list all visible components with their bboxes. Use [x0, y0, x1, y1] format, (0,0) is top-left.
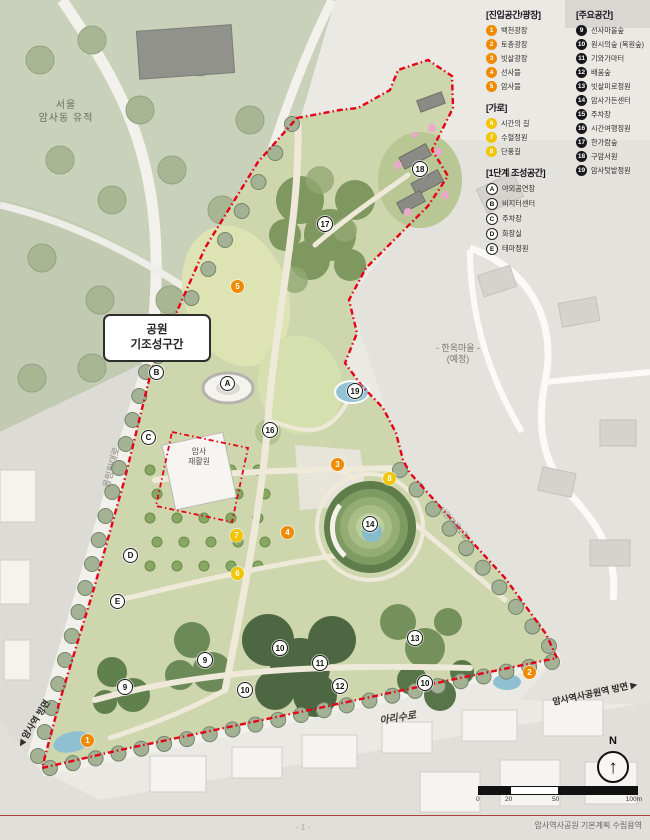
legend-marker-badge: B	[486, 198, 498, 210]
legend-item-label: 주차장	[591, 110, 611, 120]
legend-item: 8단풍길	[486, 146, 572, 157]
map-marker-17: 17	[317, 216, 333, 232]
legend-marker-badge: 13	[576, 81, 587, 92]
legend-item: D화장실	[486, 228, 572, 240]
legend-item: 5암사뜰	[486, 81, 572, 92]
map-marker-D: D	[123, 548, 138, 563]
page-number: - 1 -	[296, 823, 310, 832]
legend-marker-badge: 5	[486, 81, 497, 92]
map-marker-10: 10	[417, 675, 433, 691]
map-marker-6: 6	[231, 567, 244, 580]
legend-item: 17한가람숲	[576, 137, 648, 148]
legend-item: 19암사텃밭정원	[576, 165, 648, 176]
legend-item: 13빗살미로정원	[576, 81, 648, 92]
legend-item-label: 암사가든센터	[591, 96, 631, 106]
legend-marker-badge: 14	[576, 95, 587, 106]
legend-item-label: 백천광장	[501, 26, 527, 36]
map-marker-4: 4	[281, 526, 294, 539]
legend-marker-badge: 11	[576, 53, 587, 64]
legend-item-label: 빗살미로정원	[591, 82, 631, 92]
legend-item-label: 암사뜰	[501, 82, 521, 92]
map-marker-18: 18	[412, 161, 428, 177]
legend-marker-badge: 4	[486, 67, 497, 78]
map-marker-14: 14	[362, 516, 378, 532]
legend-item-label: 선사마을숲	[591, 26, 624, 36]
legend-item-label: 화장실	[502, 229, 522, 239]
legend-title: [가로]	[486, 101, 572, 114]
legend-item-label: 선사뜰	[501, 68, 521, 78]
legend-group-entry: [진입공간/광장]1백천광장2토층광장3빗살광장4선사뜰5암사뜰	[486, 8, 572, 92]
legend-title: [진입공간/광장]	[486, 8, 572, 21]
existing-section-box: 공원 기조성구간	[103, 314, 211, 362]
legend-marker-badge: 9	[576, 25, 587, 36]
legend-marker-badge: 1	[486, 25, 497, 36]
legend-item-label: 원시의숲 (복원숲)	[591, 40, 644, 50]
legend-item-label: 암사텃밭정원	[591, 166, 631, 176]
legend-item: 11기와가마터	[576, 53, 648, 64]
legend-marker-badge: 7	[486, 132, 497, 143]
scale-bar: 0 20 50 100m	[478, 786, 638, 805]
legend-marker-badge: 10	[576, 39, 587, 50]
map-marker-13: 13	[407, 630, 423, 646]
map-marker-B: B	[149, 365, 164, 380]
scale-tick: 100m	[626, 796, 642, 803]
legend-item: A야외공연장	[486, 183, 572, 195]
map-marker-2: 2	[523, 666, 536, 679]
legend-marker-badge: 3	[486, 53, 497, 64]
legend-marker-badge: 16	[576, 123, 587, 134]
legend-marker-badge: C	[486, 213, 498, 225]
legend-item: 15주차장	[576, 109, 648, 120]
legend-item: 7수혈정원	[486, 132, 572, 143]
legend-item-label: 기와가마터	[591, 54, 624, 64]
legend-group-street: [가로]6시간의 길7수혈정원8단풍길	[486, 101, 572, 157]
legend-item-label: 야외공연장	[502, 184, 535, 194]
legend-item: 3빗살광장	[486, 53, 572, 64]
legend-marker-badge: 6	[486, 118, 497, 129]
legend-group-main: [주요공간]9선사마을숲10원시의숲 (복원숲)11기와가마터12배움숲13빗살…	[576, 8, 648, 176]
north-arrow-icon: ↑	[597, 751, 629, 783]
legend-item-label: 토층광장	[501, 40, 527, 50]
footer-rule	[0, 815, 650, 816]
legend-group-phase1: [1단계 조성공간]A야외공연장B비지터센터C주차장D화장실E테마정원	[486, 166, 572, 255]
legend-marker-badge: E	[486, 243, 498, 255]
legend-item: B비지터센터	[486, 198, 572, 210]
legend-item: E테마정원	[486, 243, 572, 255]
map-marker-19: 19	[347, 383, 363, 399]
legend-item: 10원시의숲 (복원숲)	[576, 39, 648, 50]
legend-item: 6시간의 길	[486, 118, 572, 129]
map-marker-9: 9	[197, 652, 213, 668]
scale-tick: 20	[505, 796, 512, 803]
legend-item-label: 시간여행정원	[591, 124, 631, 134]
map-marker-10: 10	[272, 640, 288, 656]
legend-item-label: 단풍길	[501, 147, 521, 157]
legend-item-label: 한가람숲	[591, 138, 617, 148]
map-marker-16: 16	[262, 422, 278, 438]
map-marker-C: C	[141, 430, 156, 445]
legend-item-label: 테마정원	[502, 244, 528, 254]
legend-item-label: 배움숲	[591, 68, 611, 78]
legend-item-label: 빗살광장	[501, 54, 527, 64]
legend-item-label: 시간의 길	[501, 119, 529, 129]
scale-tick: 0	[476, 796, 480, 803]
map-marker-10: 10	[237, 682, 253, 698]
map-marker-5: 5	[231, 280, 244, 293]
legend-item: 16시간여행정원	[576, 123, 648, 134]
legend-item: 14암사가든센터	[576, 95, 648, 106]
legend-item-label: 주차장	[502, 214, 522, 224]
legend-item: 1백천광장	[486, 25, 572, 36]
map-marker-12: 12	[332, 678, 348, 694]
map-marker-1: 1	[81, 734, 94, 747]
legend-marker-badge: 19	[576, 165, 587, 176]
legend-item: 12배움숲	[576, 67, 648, 78]
legend-marker-badge: 15	[576, 109, 587, 120]
legend-marker-badge: 17	[576, 137, 587, 148]
legend-marker-badge: A	[486, 183, 498, 195]
map-marker-E: E	[110, 594, 125, 609]
map-marker-3: 3	[331, 458, 344, 471]
map-marker-11: 11	[312, 655, 328, 671]
map-marker-7: 7	[230, 529, 243, 542]
legend-item: 4선사뜰	[486, 67, 572, 78]
legend-item-label: 구암서원	[591, 152, 617, 162]
legend-item-label: 수혈정원	[501, 133, 527, 143]
legend-marker-badge: 12	[576, 67, 587, 78]
legend-item: 9선사마을숲	[576, 25, 648, 36]
legend-item-label: 비지터센터	[502, 199, 535, 209]
legend-title: [주요공간]	[576, 8, 648, 21]
legend-title: [1단계 조성공간]	[486, 166, 572, 179]
map-marker-9: 9	[117, 679, 133, 695]
map-marker-8: 8	[383, 472, 396, 485]
legend: [진입공간/광장]1백천광장2토층광장3빗살광장4선사뜰5암사뜰 [가로]6시간…	[486, 8, 648, 264]
north-label: N	[602, 735, 624, 747]
map-marker-A: A	[220, 376, 235, 391]
legend-marker-badge: 2	[486, 39, 497, 50]
footer-caption: 암사역사공원 기본계획 수립용역	[535, 820, 642, 831]
legend-marker-badge: 8	[486, 146, 497, 157]
scale-tick: 50	[552, 796, 559, 803]
legend-item: 18구암서원	[576, 151, 648, 162]
legend-item: 2토층광장	[486, 39, 572, 50]
legend-marker-badge: D	[486, 228, 498, 240]
legend-marker-badge: 18	[576, 151, 587, 162]
legend-item: C주차장	[486, 213, 572, 225]
park-master-plan-page: 12345678991010101112131416171819ABCDE 서울…	[0, 0, 650, 840]
